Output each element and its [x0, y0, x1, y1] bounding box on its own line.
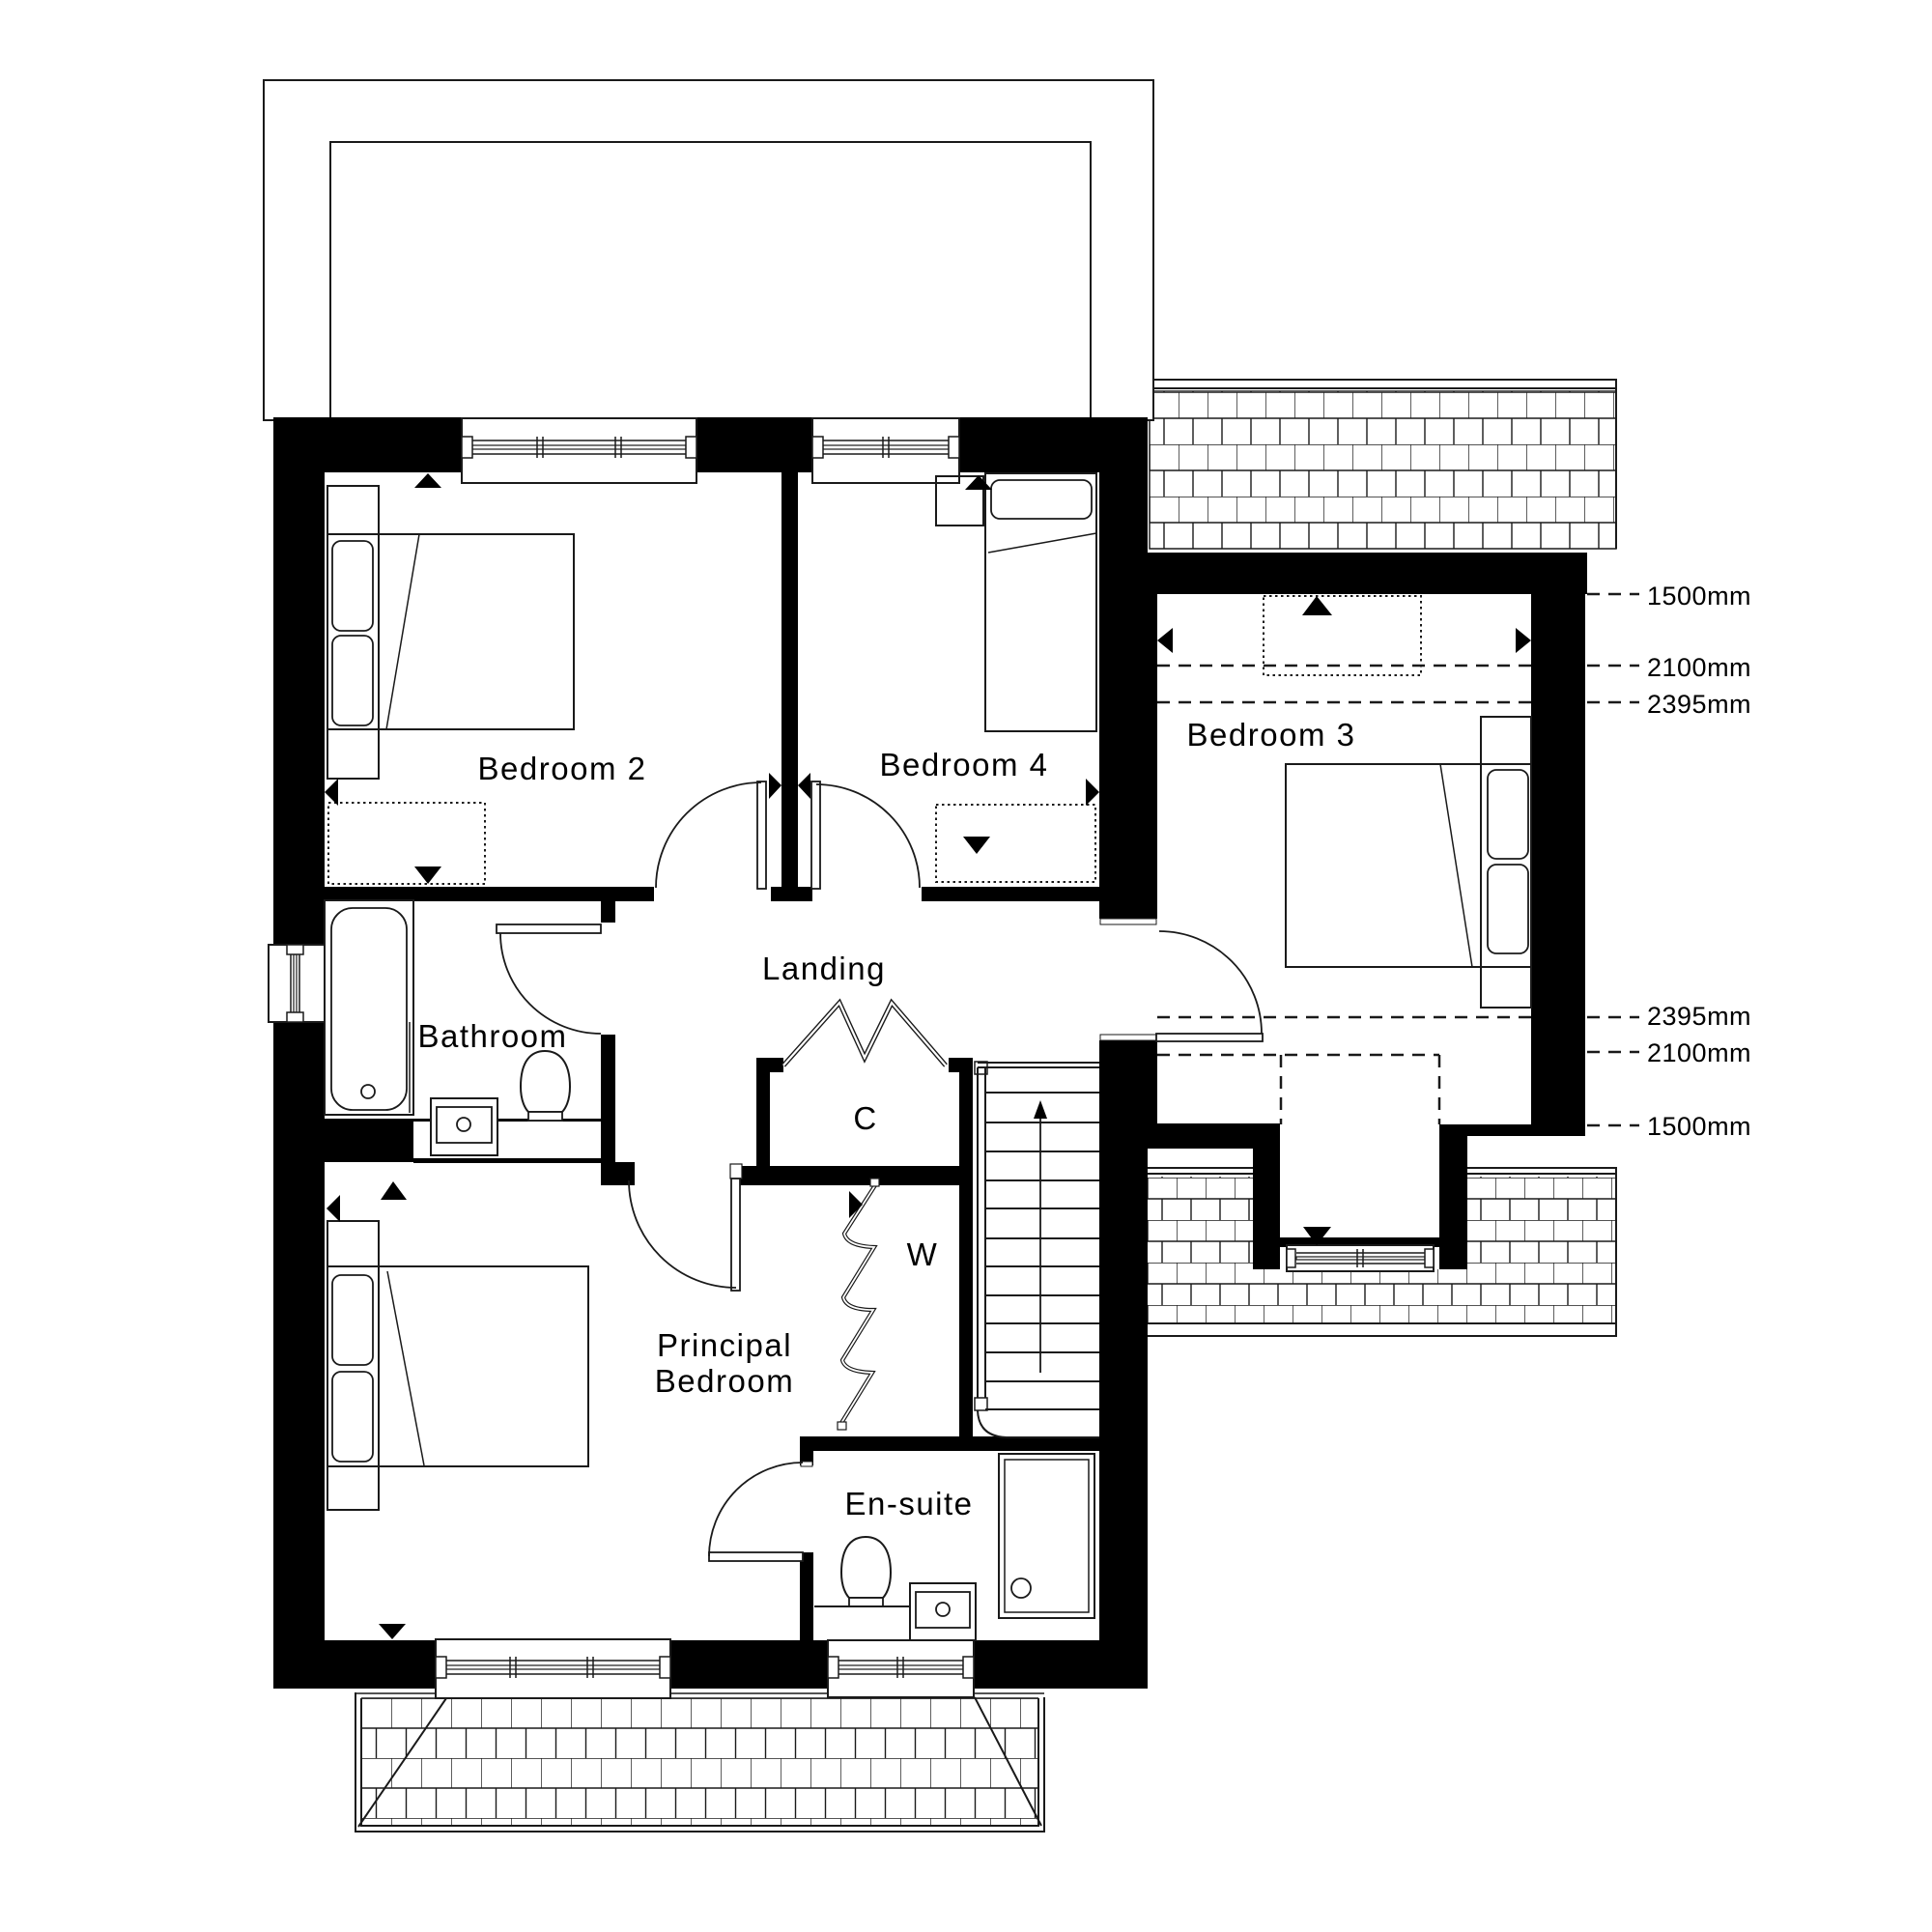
svg-text:C: C — [853, 1100, 877, 1136]
svg-text:1500mm: 1500mm — [1647, 582, 1751, 611]
svg-text:En-suite: En-suite — [844, 1486, 973, 1521]
svg-text:Bathroom: Bathroom — [417, 1018, 567, 1054]
svg-text:1500mm: 1500mm — [1647, 1112, 1751, 1141]
svg-text:Bedroom 3: Bedroom 3 — [1187, 717, 1356, 753]
svg-text:2395mm: 2395mm — [1647, 1002, 1751, 1031]
svg-text:Principal: Principal — [657, 1327, 792, 1363]
svg-text:2100mm: 2100mm — [1647, 1038, 1751, 1067]
svg-text:Bedroom: Bedroom — [655, 1363, 794, 1399]
svg-text:W: W — [907, 1236, 939, 1272]
svg-text:Landing: Landing — [762, 951, 886, 986]
svg-text:Bedroom 4: Bedroom 4 — [880, 747, 1049, 782]
svg-text:2100mm: 2100mm — [1647, 653, 1751, 682]
svg-text:2395mm: 2395mm — [1647, 690, 1751, 719]
svg-text:Bedroom 2: Bedroom 2 — [478, 751, 647, 786]
